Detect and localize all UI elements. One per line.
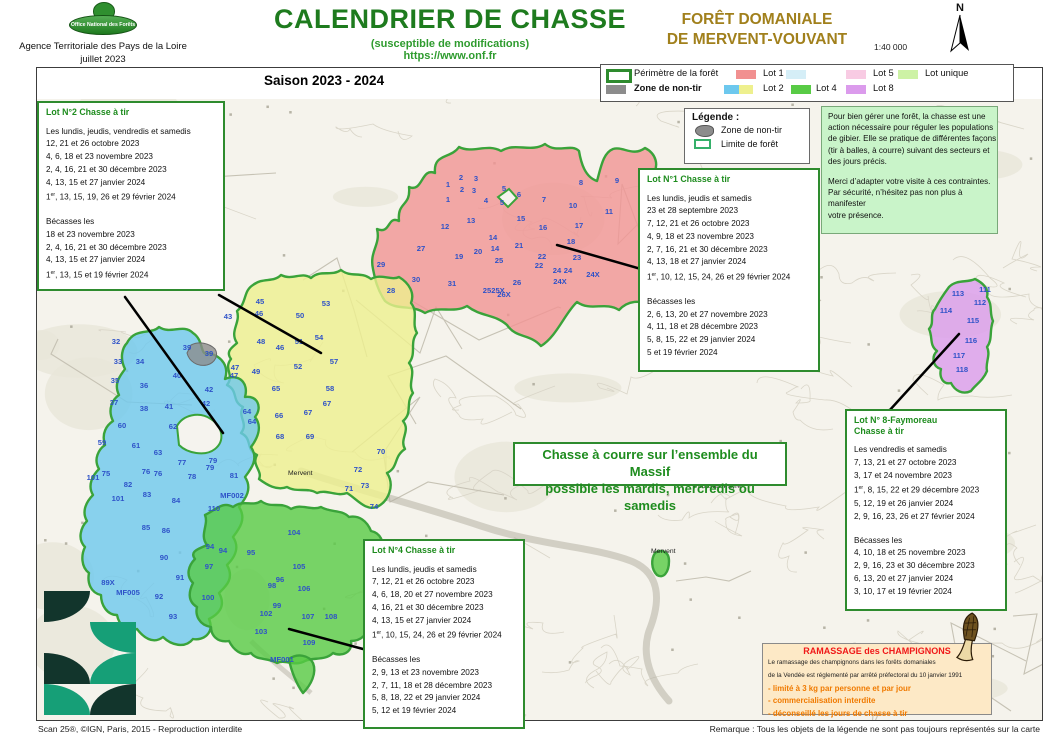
text-line: 1er, 10, 15, 24, 26 et 29 février 2024: [372, 627, 516, 643]
parcel-number: 53: [322, 299, 330, 308]
lot4-schedule-box: Lot N°4 Chasse à tir Les lundis, jeudis …: [363, 539, 525, 729]
parcel-number: 105: [293, 562, 306, 571]
text-line: 2, 6, 13, 20 et 27 novembre 2023: [647, 309, 811, 322]
text-line: [46, 205, 216, 216]
text-line: 2, 7, 16, 21 et 30 décembre 2023: [647, 244, 811, 257]
parcel-number: 32: [112, 337, 120, 346]
parcel-number: 20: [474, 247, 482, 256]
parcel-number: 49: [252, 367, 260, 376]
parcel-number: 3: [472, 186, 476, 195]
map-legend: Légende : Zone de non-tir Limite de forê…: [684, 108, 810, 164]
text-line: 3, 10, 17 et 19 février 2024: [854, 586, 998, 599]
non-tir-blob-icon: [695, 125, 714, 137]
parcel-number: 30: [412, 275, 420, 284]
parcel-number: 18: [567, 237, 575, 246]
text-line: 4, 6, 18 et 23 novembre 2023: [46, 151, 216, 164]
page: Office National des Forêts Agence Territ…: [0, 0, 1050, 742]
parcel-number: 94: [219, 546, 228, 555]
text-line: 2, 9, 16, 23, 26 et 27 février 2024: [854, 511, 998, 524]
courre-line1: Chasse à courre sur l’ensemble du Massif: [524, 446, 776, 480]
parcel-number: 114: [940, 306, 953, 315]
parcel-number: 3: [474, 174, 478, 183]
parcel-number: 22: [538, 252, 546, 261]
parcel-number: 35: [111, 376, 120, 385]
map-legend-title: Légende :: [692, 112, 809, 123]
map-legend-label: Limite de forêt: [721, 139, 778, 149]
text-line: de la Vendée est réglementé par arrêté p…: [768, 670, 986, 683]
parcel-number: 58: [326, 384, 334, 393]
parcel-number: 95: [247, 548, 256, 557]
lot8-schedule-box: Lot N° 8-Faymoreau Chasse à tir Les vend…: [845, 409, 1007, 611]
text-line: manifester: [828, 198, 991, 209]
parcel-number: 72: [354, 465, 362, 474]
agency-name: Agence Territoriale des Pays de la Loire: [8, 41, 198, 52]
parcel-number: 37: [110, 398, 118, 407]
parcel-number: 67: [304, 408, 312, 417]
text-line: 1er, 8, 15, 22 et 29 décembre 2023: [854, 482, 998, 498]
parcel-number: 100: [202, 593, 215, 602]
lot8-title-line1: Lot N° 8-Faymoreau: [854, 415, 998, 426]
text-line: Les vendredis et samedis: [854, 444, 998, 457]
text-line: 4, 13, 15 et 27 janvier 2024: [46, 254, 216, 267]
parcel-number: 60: [118, 421, 126, 430]
parcel-number: 116: [965, 336, 977, 345]
text-line: 2, 7, 11, 18 et 28 décembre 2023: [372, 680, 516, 693]
title-subtitle: (susceptible de modifications): [270, 38, 630, 50]
lot1-title: Lot N°1 Chasse à tir: [647, 174, 811, 185]
lot-color-swatch: [736, 70, 756, 79]
parcel-number: 101: [112, 494, 125, 503]
text-line: 23 et 28 septembre 2023: [647, 205, 811, 218]
parcel-number: 34: [136, 357, 145, 366]
edition-date: juillet 2023: [8, 54, 198, 65]
text-line: action nécessaire pour réguler les popul…: [828, 122, 991, 133]
text-line: 12, 21 et 26 octobre 2023: [46, 138, 216, 151]
parcel-number: 8: [579, 178, 583, 187]
parcel-number: 39: [183, 343, 191, 352]
parcel-number: 9: [615, 176, 619, 185]
text-line: 1er, 13, 15, 19, 26 et 29 février 2024: [46, 189, 216, 205]
lot-color-legend: Périmètre de la forêtLot 1Lot 5Lot uniqu…: [600, 64, 1014, 102]
text-line: 4, 9, 18 et 23 novembre 2023: [647, 231, 811, 244]
text-line: 6, 13, 20 et 27 janvier 2024: [854, 573, 998, 586]
brand-quarter-icon: [44, 591, 90, 622]
text-line: 18 et 23 novembre 2023: [46, 229, 216, 242]
map-scale: 1:40 000: [874, 42, 907, 52]
parcel-number: 24: [564, 266, 573, 275]
legend-label: Lot 8: [873, 83, 894, 93]
parcel-number: 45: [256, 297, 265, 306]
parcel-number: 17: [575, 221, 583, 230]
parcel-number: 92: [155, 592, 163, 601]
text-line: 4, 13, 15 et 27 janvier 2024: [372, 615, 516, 628]
lot-color-swatch: [898, 70, 918, 79]
lot-color-swatch: [606, 85, 626, 94]
parcel-number: 47: [230, 371, 238, 380]
lot1-schedule-lines: Les lundis, jeudis et samedis23 et 28 se…: [647, 193, 811, 360]
parcel-number: 94: [206, 542, 215, 551]
lot-color-swatch: [846, 70, 866, 79]
parcel-number: 54: [315, 333, 324, 342]
text-line: Les lundis, jeudis et samedis: [372, 564, 516, 577]
hunting-info-lines: Pour bien gérer une forêt, la chasse est…: [828, 111, 991, 221]
legend-label: Zone de non-tir: [634, 83, 702, 93]
parcel-number: 98: [268, 581, 276, 590]
parcel-number: 67: [323, 399, 331, 408]
legend-label: Lot 5: [873, 68, 894, 78]
parcel-number: 14: [491, 244, 500, 253]
text-line: 4, 13, 18 et 27 janvier 2024: [647, 256, 811, 269]
town-label: Mervent: [288, 470, 313, 477]
parcel-number: 23: [573, 253, 581, 262]
parcel-number: 101: [87, 473, 100, 482]
parcel-number: 13: [467, 216, 475, 225]
text-line: 4, 11, 18 et 28 décembre 2023: [647, 321, 811, 334]
text-line: 2, 9, 16, 23 et 30 décembre 2023: [854, 560, 998, 573]
parcel-number: 103: [255, 627, 268, 636]
parcel-number: 117: [953, 351, 965, 360]
parcel-number: 69: [306, 432, 314, 441]
text-line: 1er, 10, 12, 15, 24, 26 et 29 février 20…: [647, 269, 811, 285]
text-line: Par sécurité, n’hésitez pas non plus à: [828, 187, 991, 198]
parcel-number: 39: [205, 349, 213, 358]
lot-color-swatch: [791, 85, 811, 94]
parcel-number: 42: [205, 385, 213, 394]
parcel-number: 38: [140, 404, 148, 413]
parcel-number: 2: [459, 173, 463, 182]
parcel-number: 25: [495, 256, 504, 265]
parcel-number: 91: [176, 573, 185, 582]
parcel-number: 62: [169, 422, 177, 431]
parcel-number: 12: [441, 222, 449, 231]
legend-label: Lot 4: [816, 83, 837, 93]
legend-label: Lot 2: [763, 83, 784, 93]
parcel-number: 63: [154, 448, 162, 457]
parcel-number: MF002: [220, 491, 244, 500]
parcel-number: 104: [288, 528, 301, 537]
forest-perimeter-swatch: [606, 69, 632, 83]
parcel-number: 93: [169, 612, 177, 621]
parcel-number: 76: [154, 469, 162, 478]
parcel-number: 24X: [586, 270, 600, 279]
forest-name-line2: DE MERVENT-VOUVANT: [652, 30, 862, 50]
copyright-note: Scan 25®, ©IGN, Paris, 2015 - Reproducti…: [38, 724, 242, 734]
text-line: Les lundis, jeudis et samedis: [647, 193, 811, 206]
text-line: des jours précis.: [828, 156, 991, 167]
parcel-number: 85: [142, 523, 151, 532]
text-line: - limité à 3 kg par personne et par jour: [768, 683, 986, 696]
text-line: votre présence.: [828, 210, 991, 221]
parcel-number: 106: [298, 584, 311, 593]
text-line: 5, 12 et 19 février 2024: [372, 705, 516, 718]
map-legend-item-limite: Limite de forêt: [721, 139, 809, 150]
parcel-number: 19: [455, 252, 463, 261]
parcel-number: 112: [974, 298, 986, 307]
parcel-number: 70: [377, 447, 385, 456]
lot2-schedule-lines: Les lundis, jeudis, vendredis et samedis…: [46, 126, 216, 283]
lot2-title: Lot N°2 Chasse à tir: [46, 107, 216, 118]
parcel-number: 111: [979, 285, 992, 294]
parcel-number: 71: [345, 484, 354, 493]
parcel-number: 81: [230, 471, 239, 480]
hunting-info-box: Pour bien gérer une forêt, la chasse est…: [821, 106, 998, 234]
parcel-number: 90: [160, 553, 168, 562]
parcel-number: 102: [260, 609, 273, 618]
parcel-number: 24: [553, 266, 562, 275]
parcel-number: 108: [325, 612, 338, 621]
brand-quarter-icon: [90, 684, 136, 715]
zone-lot4-green: [189, 501, 388, 663]
parcel-number: 52: [294, 362, 302, 371]
compass-arrow-icon: [946, 13, 974, 55]
parcel-number: 36: [140, 381, 148, 390]
parcel-number: 22: [535, 261, 543, 270]
parcel-number: 79: [206, 463, 214, 472]
text-line: Merci d’adapter votre visite à ces contr…: [828, 176, 991, 187]
text-line: 5 et 19 février 2024: [647, 347, 811, 360]
lot-color-swatch: [739, 85, 753, 94]
mushroom-icon: [945, 610, 993, 664]
parcel-number: 26X: [497, 290, 511, 299]
parcel-number: 57: [330, 357, 338, 366]
courre-line2: possible les mardis, mercredis ou samedi…: [524, 480, 776, 514]
parcel-number: 118: [956, 365, 968, 374]
parcel-number: 41: [165, 402, 174, 411]
legend-label: Périmètre de la forêt: [634, 68, 718, 78]
text-line: [854, 524, 998, 535]
parcel-number: MF001: [270, 655, 294, 664]
text-line: 4, 13, 15 et 27 janvier 2024: [46, 177, 216, 190]
parcel-number: 77: [178, 458, 186, 467]
parcel-number: 74: [370, 502, 379, 511]
parcel-number: 48: [257, 337, 265, 346]
text-line: 5, 12, 19 et 26 janvier 2024: [854, 498, 998, 511]
parcel-number: 24X: [553, 277, 567, 286]
parcel-number: 7: [542, 195, 546, 204]
lot2-schedule-box: Lot N°2 Chasse à tir Les lundis, jeudis,…: [37, 101, 225, 291]
brand-quarter-icon: [44, 684, 90, 715]
parcel-number: 97: [205, 562, 213, 571]
parcel-number: 113: [952, 289, 964, 298]
text-line: [647, 285, 811, 296]
text-line: Pour bien gérer une forêt, la chasse est…: [828, 111, 991, 122]
legend-remark: Remarque : Tous les objets de la légende…: [710, 724, 1040, 734]
brand-quarter-icon: [44, 653, 90, 684]
lot1-schedule-box: Lot N°1 Chasse à tir Les lundis, jeudis …: [638, 168, 820, 372]
parcel-number: 6: [517, 190, 521, 199]
title-block: CALENDRIER DE CHASSE (susceptible de mod…: [270, 4, 630, 62]
text-line: 7, 12, 21 et 26 octobre 2023: [647, 218, 811, 231]
parcel-number: 64: [243, 407, 252, 416]
brand-quarter-icon: [90, 622, 136, 653]
text-line: Les lundis, jeudis, vendredis et samedis: [46, 126, 216, 139]
parcel-number: 68: [276, 432, 284, 441]
parcel-number: 99: [273, 601, 281, 610]
lot8-schedule-lines: Les vendredis et samedis7, 13, 21 et 27 …: [854, 444, 998, 599]
map-legend-item-non-tir: Zone de non-tir: [721, 125, 809, 136]
parcel-number: 110: [208, 504, 220, 513]
parcel-number: 86: [162, 526, 170, 535]
parcel-number: 82: [124, 480, 132, 489]
parcel-number: 64: [248, 417, 257, 426]
parcel-number: 28: [387, 286, 395, 295]
parcel-number: 46: [276, 343, 284, 352]
parcel-number: 21: [515, 241, 524, 250]
page-title: CALENDRIER DE CHASSE: [270, 4, 630, 35]
parcel-number: 43: [224, 312, 232, 321]
text-line: 7, 12, 21 et 26 octobre 2023: [372, 576, 516, 589]
mushroom-rules: - limité à 3 kg par personne et par jour…: [768, 683, 986, 721]
parcel-number: 50: [296, 311, 304, 320]
parcel-number: 2: [460, 185, 464, 194]
parcel-number: 76: [142, 467, 150, 476]
parcel-number: 59: [98, 438, 106, 447]
text-line: de gibier. Elle se pratique de différent…: [828, 133, 991, 144]
text-line: Bécasses les: [372, 654, 516, 667]
text-line: 2, 4, 16, 21 et 30 décembre 2023: [46, 242, 216, 255]
text-line: 4, 16, 21 et 30 décembre 2023: [372, 602, 516, 615]
parcel-number: 11: [605, 207, 614, 216]
chasse-a-courre-note: Chasse à courre sur l’ensemble du Massif…: [513, 442, 787, 486]
text-line: [828, 167, 991, 176]
lot4-title: Lot N°4 Chasse à tir: [372, 545, 516, 556]
text-line: Bécasses les: [46, 216, 216, 229]
parcel-number: 73: [361, 481, 369, 490]
text-line: 1er, 13, 15 et 19 février 2024: [46, 267, 216, 283]
text-line: 4, 10, 18 et 25 novembre 2023: [854, 547, 998, 560]
parcel-number: 16: [539, 223, 547, 232]
parcel-number: 14: [489, 233, 498, 242]
text-line: 5, 8, 18, 22 et 29 janvier 2024: [372, 692, 516, 705]
text-line: 7, 13, 21 et 27 octobre 2023: [854, 457, 998, 470]
text-line: 2, 9, 13 et 23 novembre 2023: [372, 667, 516, 680]
text-line: 2, 4, 16, 21 et 30 décembre 2023: [46, 164, 216, 177]
parcel-number: 26: [513, 278, 521, 287]
parcel-number: 78: [188, 472, 196, 481]
parcel-number: 33: [114, 357, 122, 366]
parcel-number: 10: [569, 201, 577, 210]
parcel-number: 107: [302, 612, 315, 621]
lot4-schedule-lines: Les lundis, jeudis et samedis7, 12, 21 e…: [372, 564, 516, 719]
parcel-number: 15: [517, 214, 526, 223]
onf-brand-mark: [44, 591, 136, 715]
parcel-number: 31: [448, 279, 457, 288]
parcel-number: 27: [417, 244, 425, 253]
text-line: - déconseillé les jours de chasse à tir: [768, 708, 986, 721]
brand-quarter-icon: [90, 653, 136, 684]
text-line: (tir à balles, à courre) suivant des sec…: [828, 145, 991, 156]
onf-logo: Office National des Forêts: [69, 15, 137, 35]
text-line: 4, 6, 18, 20 et 27 novembre 2023: [372, 589, 516, 602]
parcel-number: 65: [272, 384, 281, 393]
legend-label: Lot unique: [925, 68, 968, 78]
forest-name: FORÊT DOMANIALE DE MERVENT-VOUVANT: [652, 10, 862, 50]
text-line: Bécasses les: [647, 296, 811, 309]
forest-limit-icon: [694, 139, 711, 149]
parcel-number: 89X: [101, 578, 115, 587]
parcel-number: 29: [377, 260, 385, 269]
lot-color-swatch: [724, 85, 739, 94]
parcel-number: 75: [102, 469, 111, 478]
parcel-number: 66: [275, 411, 283, 420]
text-line: - commercialisation interdite: [768, 695, 986, 708]
text-line: 3, 17 et 24 novembre 2023: [854, 470, 998, 483]
text-line: 5, 8, 15, 22 et 29 janvier 2024: [647, 334, 811, 347]
parcel-number: 115: [967, 316, 980, 325]
town-label: Mervent: [651, 548, 676, 555]
text-line: [372, 643, 516, 654]
text-line: Bécasses les: [854, 535, 998, 548]
parcel-number: 83: [143, 490, 151, 499]
onf-url: https://www.onf.fr: [270, 50, 630, 62]
lot8-title-line2: Chasse à tir: [854, 426, 998, 437]
map-legend-label: Zone de non-tir: [721, 125, 782, 135]
parcel-number: 61: [132, 441, 141, 450]
legend-label: Lot 1: [763, 68, 784, 78]
forest-name-line1: FORÊT DOMANIALE: [652, 10, 862, 30]
season-label: Saison 2023 - 2024: [264, 73, 384, 88]
lot-color-swatch: [786, 70, 806, 79]
lot-color-swatch: [846, 85, 866, 94]
parcel-number: 96: [276, 575, 284, 584]
parcel-number: 109: [303, 638, 316, 647]
parcel-number: 84: [172, 496, 181, 505]
